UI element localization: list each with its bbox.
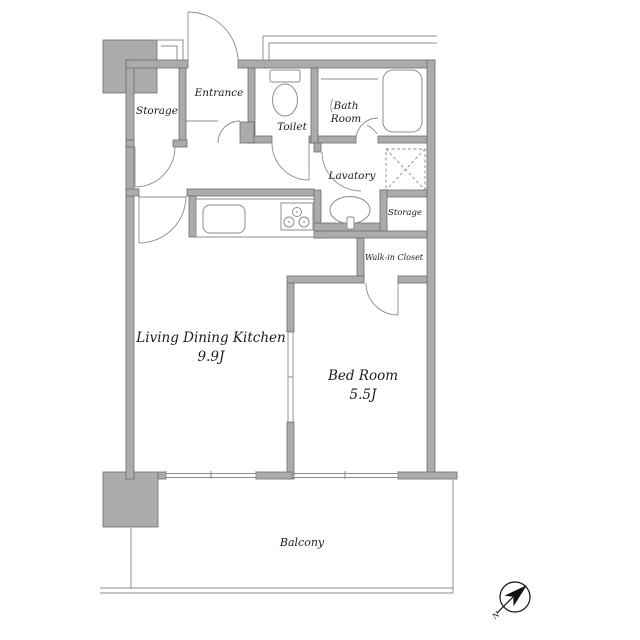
entrance-step-stub [240, 122, 254, 143]
ldk-label: Living Dining Kitchen [135, 330, 285, 346]
outer-wall-west [126, 60, 134, 479]
wall-segment [126, 140, 134, 147]
wall-segment [287, 422, 294, 479]
bath-room-label-line2: Room [330, 113, 362, 125]
outer-wall-top-right [238, 60, 435, 68]
wall-segment [126, 189, 139, 196]
balcony-label: Balcony [279, 536, 325, 549]
pillar-bottom-left [103, 472, 158, 527]
entrance-label: Entrance [194, 87, 244, 99]
ldk-door-arc [139, 196, 186, 243]
lavatory-label: Lavatory [328, 170, 377, 182]
wall-segment [189, 196, 196, 237]
floor-plan: Entrance Storage Toilet Bath Room Lavato… [0, 0, 640, 640]
north-needle [505, 585, 528, 606]
storage-utility-label: Storage [388, 208, 422, 218]
toilet-door-arc [272, 143, 309, 180]
bedroom-sliding-door [288, 332, 293, 422]
labels: Entrance Storage Toilet Bath Room Lavato… [135, 87, 424, 549]
wall-segment [380, 190, 387, 231]
wall-segment [398, 472, 457, 479]
outer-wall-east [427, 60, 435, 479]
entrance-door-arc [188, 12, 238, 62]
floor-plan-drawing: Entrance Storage Toilet Bath Room Lavato… [0, 0, 640, 640]
window [292, 471, 398, 479]
storage-door-arc [135, 147, 175, 187]
wall-segment [173, 140, 187, 147]
wall-segment [179, 68, 186, 142]
compass-icon: N [490, 582, 530, 622]
walk-in-closet-label: Walk-in Closet [365, 253, 424, 262]
wall-segment [256, 472, 292, 479]
bath-room-label-line1: Bath [333, 100, 359, 112]
wall-segment [287, 276, 364, 283]
bedroom-label: Bed Room [327, 368, 398, 384]
wall-segment [287, 283, 294, 332]
outer-wall-top-left [126, 60, 188, 68]
wall-segment [187, 189, 314, 196]
north-label: N [490, 610, 502, 622]
kitchen-counter [196, 199, 314, 237]
wall-segment [314, 231, 427, 238]
wall-segment [311, 68, 318, 143]
corridor-outline [161, 46, 177, 60]
toilet-icon [270, 70, 300, 116]
wall-segment [378, 136, 427, 143]
storage-entrance-label: Storage [136, 105, 178, 117]
needle-tail [497, 597, 513, 613]
washing-machine-area [386, 149, 425, 190]
toilet-label: Toilet [277, 121, 307, 133]
wall-segment [318, 136, 356, 143]
closet-door-arc [366, 283, 398, 315]
corridor-outline [269, 43, 437, 60]
kitchen-sink-icon [203, 205, 245, 233]
wall-segment [314, 143, 321, 152]
wall-segment [398, 276, 427, 283]
ldk-area: 9.9J [198, 349, 226, 365]
stove-icon [281, 203, 313, 230]
hall-door-arc [218, 121, 240, 143]
wall-segment [158, 472, 166, 479]
corridor-outline [155, 40, 183, 60]
corridor-outline [263, 36, 437, 60]
bedroom-area: 5.5J [350, 387, 378, 403]
window [166, 471, 256, 479]
